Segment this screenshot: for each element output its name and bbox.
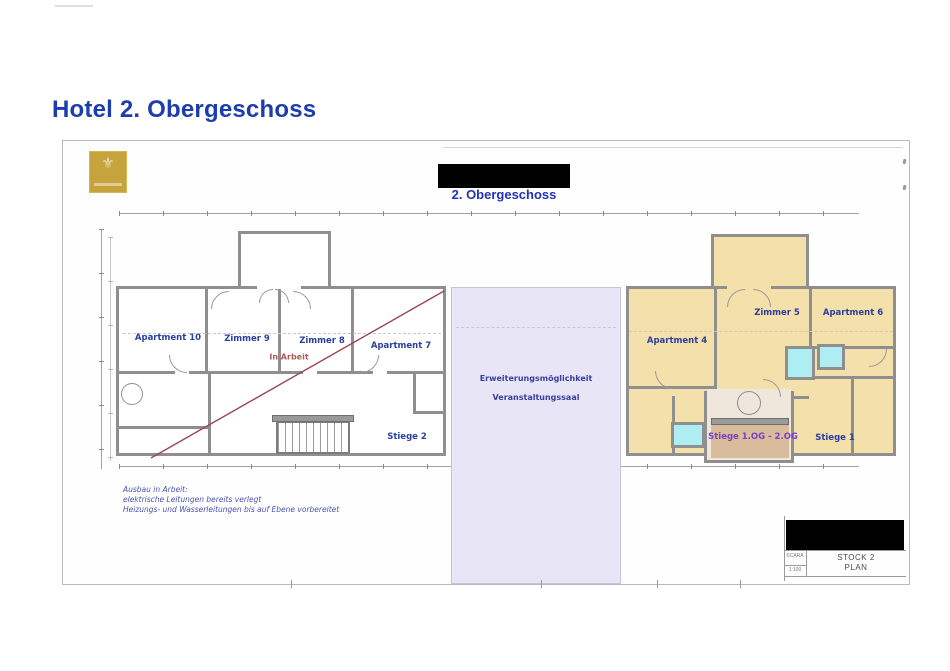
stairwell-wall (704, 391, 707, 463)
bathroom (817, 344, 845, 370)
interior-wall (714, 289, 717, 396)
interior-wall (208, 374, 211, 456)
room-label-zimmer-9: Zimmer 9 (224, 334, 270, 344)
stairwell-wall (704, 460, 794, 463)
stair-landing (711, 418, 789, 425)
room-label-zimmer-8: Zimmer 8 (299, 336, 345, 346)
logo-emblem-icon: ⚜ (90, 156, 126, 171)
corridor-wall (119, 371, 446, 374)
page: Hotel 2. Obergeschoss ⚜ 2. Obergeschoss … (0, 0, 950, 671)
interior-wall (851, 379, 854, 456)
bathroom (785, 346, 815, 380)
scale-label: SCARA (784, 553, 806, 559)
door-opening (727, 286, 771, 289)
staircase-treads (276, 421, 350, 454)
note-line: elektrische Leitungen bereits verlegt (123, 495, 339, 505)
dashed-dimension (456, 327, 616, 328)
sheet-name-line2: PLAN (807, 563, 905, 572)
note-line: Ausbau in Arbeit: (123, 485, 339, 495)
note-line: Heizungs- und Wasserleitungen bis auf Eb… (123, 505, 339, 515)
scale-value: 1:100 (784, 567, 806, 573)
dashed-dimension (629, 331, 893, 332)
stair-direction-symbol (737, 391, 761, 415)
door-opening (373, 371, 387, 374)
expansion-label-line2: Veranstaltungssaal (452, 393, 620, 402)
interior-wall (119, 426, 208, 429)
frame-tick (291, 580, 292, 588)
stairwell-wall (791, 391, 794, 463)
interior-wall (809, 289, 812, 346)
sheet-name-line1: STOCK 2 (807, 553, 905, 562)
drawing-sheet: ⚜ 2. Obergeschoss Erweiterungsmöglichkei… (62, 140, 910, 585)
stair-label-stiege-1: Stiege 1 (815, 433, 855, 443)
status-label-in-arbeit: In Arbeit (269, 353, 308, 362)
interior-wall (413, 411, 446, 414)
dimension-line-top (119, 211, 859, 216)
room-label-apartment-6: Apartment 6 (823, 308, 883, 318)
redacted-architect-info (786, 520, 904, 550)
door-opening (303, 371, 317, 374)
frame-tick (541, 580, 542, 588)
frame-tick (657, 580, 658, 588)
expansion-label-line1: Erweiterungsmöglichkeit (452, 374, 620, 383)
interior-wall (413, 374, 416, 414)
interior-wall (205, 289, 208, 371)
title-block-line (784, 550, 906, 551)
redacted-project-name (438, 164, 570, 188)
dimension-line-left-inner (108, 237, 113, 461)
stair-label-stiege-2: Stiege 2 (387, 432, 427, 442)
hotel-logo: ⚜ (89, 151, 127, 193)
title-block-line (784, 565, 806, 566)
dimension-line-left (99, 229, 104, 469)
left-building-annex (238, 231, 331, 289)
construction-notes: Ausbau in Arbeit: elektrische Leitungen … (123, 485, 339, 515)
frame-tick (740, 580, 741, 588)
interior-wall (351, 289, 354, 371)
bathroom (671, 422, 705, 448)
expansion-area: Erweiterungsmöglichkeit Veranstaltungssa… (451, 287, 621, 584)
scan-artifact (55, 5, 93, 7)
scan-artifact (903, 185, 907, 191)
right-building-annex (711, 234, 809, 291)
room-label-apartment-7: Apartment 7 (371, 341, 431, 351)
title-block-line (784, 576, 906, 577)
stair-landing (272, 415, 354, 422)
logo-text-strip (94, 183, 122, 186)
room-label-apartment-4: Apartment 4 (647, 336, 707, 346)
page-title: Hotel 2. Obergeschoss (52, 96, 316, 124)
frame-double-line (443, 147, 903, 148)
stair-label-stiege-1og-2og: Stiege 1.OG - 2.OG (708, 432, 798, 442)
room-label-zimmer-5: Zimmer 5 (754, 308, 800, 318)
room-label-apartment-10: Apartment 10 (135, 333, 201, 343)
floor-subtitle: 2. Obergeschoss (438, 187, 570, 202)
scan-artifact (903, 159, 907, 165)
wc-fixture-symbol (121, 383, 143, 405)
